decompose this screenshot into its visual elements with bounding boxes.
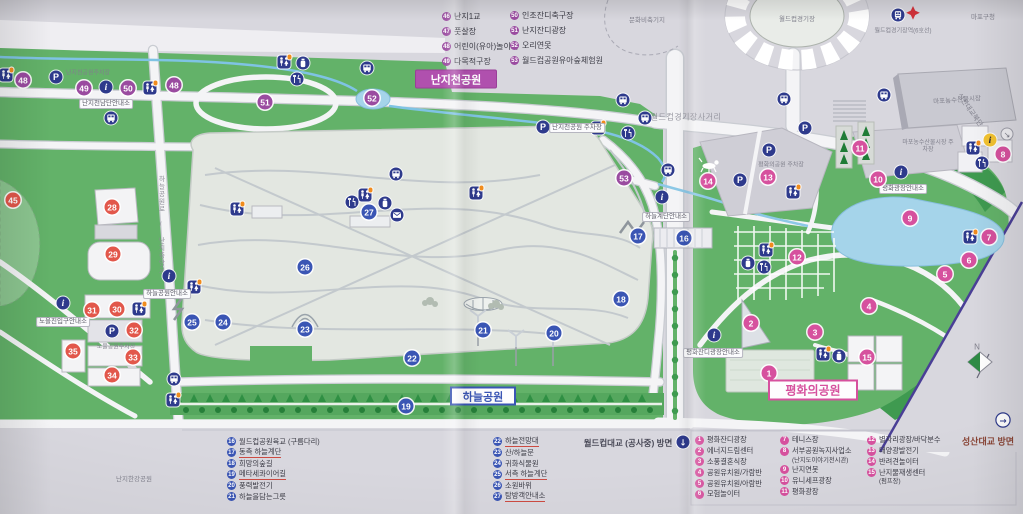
bus-icon [390,168,403,181]
map-marker-31: 31 [85,303,100,318]
legend-peace-col3: 12별자리광장/바닥분수13태양광발전기14반려견놀이터15난지물재생센터(펌프… [867,435,941,486]
restroom-icon [967,142,980,155]
svg-text:P: P [53,72,59,82]
worldcup-bridge-direction: 월드컵대교 (공사중) 방면 [584,437,673,449]
map-marker-52: 52 [365,91,380,106]
legend-item-49: 49다목적구장 [442,54,518,69]
bus-icon [639,112,652,125]
legend-label: 어린이(유아)놀이터 [454,41,518,52]
map-marker-14: 14 [701,174,716,189]
map-marker-45: 45 [6,193,21,208]
svg-text:P: P [766,145,772,155]
food-icon [291,73,304,86]
legend-sky-col2: 22하늘전망대23산/하늘문24귀화식물원25서측 하늘계단26소원바위27탐방… [493,436,547,502]
restroom-icon [760,244,773,257]
legend-number-badge: 24 [493,459,502,468]
svg-text:i: i [62,299,65,308]
map-marker-53: 53 [617,171,632,186]
legend-number-badge: 26 [493,481,502,490]
accessible-dot [825,346,832,353]
legend-number-badge: 5 [695,479,704,488]
legend-top-col2: 50인조잔디축구장51난지잔디광장52오리연못53월드컵공원유아숲체험원 [510,8,603,68]
map-label: 하늘계단안내소 [642,212,690,222]
legend-label: 산/하늘문 [505,448,534,458]
map-label: 난지천남단안내소 [79,99,133,109]
legend-label: 모험놀이터 [707,489,740,499]
legend-top-col1: 46난지1교47풋살장48어린이(유아)놀이터49다목적구장 [442,9,518,69]
legend-label: 별자리광장/바닥분수 [879,435,941,445]
legend-number-badge: 47 [442,27,451,36]
accessible-dot [141,301,148,308]
legend-number-badge: 1 [695,436,704,445]
legend-number-badge: 23 [493,448,502,457]
legend-label: 난지물재생센터 [879,468,925,478]
map-marker-35: 35 [66,344,81,359]
legend-item-51: 51난지잔디광장 [510,23,603,38]
parking-icon: P [50,71,63,84]
legend-sublabel: (난지도이야기전시관) [792,457,852,465]
map-marker-10: 10 [871,172,886,187]
legend-number-badge: 7 [780,436,789,445]
map-marker-3: 3 [808,325,823,340]
legend-label: 귀화식물원 [505,459,539,469]
info-icon: i [163,270,176,283]
legend-item-46: 46난지1교 [442,9,518,24]
legend-sublabel: (펌프장) [879,478,941,486]
legend-item-4: 4공원유치원/가람반 [695,467,762,478]
legend-item-1: 1평화잔디광장 [695,435,762,446]
accessible-dot [975,140,982,147]
accessible-dot [152,80,159,87]
legend-item-8: 8서부공원녹지사업소 [780,446,852,457]
legend-number-badge: 52 [510,41,519,50]
parking-icon: P [763,144,776,157]
map-marker-32: 32 [127,323,142,338]
map-label: 하늘공원로 / 난지중앙로 [155,176,165,275]
map-label: 문화비축기지 [629,14,665,24]
info-icon: i [656,191,669,204]
restroom-icon [278,56,291,69]
cup-icon [742,257,755,270]
food-icon [346,196,359,209]
legend-label: 반려견놀이터 [879,457,919,467]
map-label: 평화잔디광장안내소 [683,348,743,358]
map-label: N [974,343,980,352]
legend-label: 태양광발전기 [879,446,919,456]
legend-item-25: 25서측 하늘계단 [493,469,547,480]
accessible-dot [972,229,979,236]
svg-text:→: → [999,416,1006,425]
map-marker-29: 29 [106,247,121,262]
legend-item-2: 2에너지드림센터 [695,446,762,457]
legend-number-badge: 16 [227,437,236,446]
arrow-right-icon: → [997,414,1010,427]
svg-text:i: i [900,168,903,177]
map-label: 하늘공원안내소 [143,289,191,299]
legend-item-19: 19메타세콰이어길 [227,469,320,480]
legend-label: 월드컵공원유아숲체험원 [522,55,603,66]
svg-text:P: P [737,175,743,185]
legend-number-badge: 4 [695,468,704,477]
legend-item-13: 13태양광발전기 [867,446,941,457]
legend-number-badge: 46 [442,12,451,21]
worldcup-park-paper-map: 4849504851525345282931303235333416171819… [0,0,1023,514]
cup-icon [297,57,310,70]
legend-number-badge: 13 [867,447,876,456]
legend-number-badge: 2 [695,447,704,456]
legend-label: 하늘전망대 [505,436,539,447]
map-marker-20: 20 [547,326,562,341]
legend-label: 공원유치원/가람반 [707,468,762,478]
map-marker-51: 51 [258,95,273,110]
map-label: 난지천공원 주차장 [549,123,605,133]
legend-label: 난지잔디광장 [522,25,566,36]
legend-item-3: 3소풍결혼식장 [695,457,762,468]
svg-text:i: i [168,272,171,281]
svg-text:i: i [989,136,992,145]
legend-label: 메타세콰이어길 [239,469,286,480]
legend-label: 평화잔디광장 [707,435,747,445]
map-label: 평화의공원 주차장 [758,160,804,169]
pyeonghwa-park-badge: 평화의공원 [768,380,858,401]
map-label: 난지천공원주차장 [66,68,110,77]
legend-item-6: 6모험놀이터 [695,489,762,500]
svg-text:↓: ↓ [679,438,686,447]
legend-item-20: 20풍력발전기 [227,480,320,491]
legend-label: 인조잔디축구장 [522,10,574,21]
map-marker-18: 18 [614,292,629,307]
restroom-icon [817,348,830,361]
arrow-ne-icon: ↘ [1002,129,1013,140]
svg-text:P: P [540,122,546,132]
legend-item-21: 21하늘을담는그릇 [227,491,320,502]
map-marker-26: 26 [298,260,313,275]
legend-peace-col1: 1평화잔디광장2에너지드림센터3소풍결혼식장4공원유치원/가람반5공원유치원/아… [695,435,762,500]
accessible-dot [239,201,246,208]
restroom-icon [359,189,372,202]
legend-peace-col2: 7테니스장8서부공원녹지사업소(난지도이야기전시관)9난지연못10유니세프광장1… [780,435,852,497]
map-marker-48: 48 [16,73,31,88]
legend-number-badge: 48 [442,42,451,51]
nanjicheon-park-badge: 난지천공원 [415,70,497,89]
legend-number-badge: 3 [695,457,704,466]
legend-label: 풍력발전기 [239,481,273,491]
cup-icon [379,197,392,210]
legend-number-badge: 51 [510,26,519,35]
map-marker-33: 33 [126,350,141,365]
legend-item-52: 52오리연못 [510,38,603,53]
legend-item-18: 18희망의숲길 [227,458,320,469]
map-label: 월드컵경기장 [779,13,815,23]
svg-text:P: P [109,326,115,336]
legend-label: 월드컵공원육교 (구름다리) [239,437,320,447]
legend-item-27: 27탐방객안내소 [493,491,547,502]
map-marker-17: 17 [631,229,646,244]
legend-label: 다목적구장 [454,56,491,67]
legend-item-48: 48어린이(유아)놀이터 [442,39,518,54]
haneul-park-badge: 하늘공원 [450,387,516,406]
legend-item-11: 11평화광장 [780,486,852,497]
restroom-icon [167,394,180,407]
legend-item-15: 15난지물재생센터 [867,467,941,478]
info-icon: i [100,81,113,94]
restroom-icon [964,231,977,244]
legend-item-22: 22하늘전망대 [493,436,547,447]
legend-item-53: 53월드컵공원유아숲체험원 [510,53,603,68]
restroom-icon [0,69,13,82]
map-marker-7: 7 [982,230,997,245]
legend-number-badge: 10 [780,476,789,485]
legend-label: 동측 하늘계단 [239,447,281,458]
legend-number-badge: 53 [510,56,519,65]
parking-icon: P [106,325,119,338]
map-marker-34: 34 [105,368,120,383]
food-icon [976,157,989,170]
bus-icon [361,62,374,75]
legend-item-7: 7테니스장 [780,435,852,446]
map-marker-49: 49 [77,81,92,96]
legend-label: 난지연못 [792,465,818,475]
map-marker-6: 6 [962,253,977,268]
legend-number-badge: 12 [867,436,876,445]
bus-icon [662,164,675,177]
map-label: 마포구청 [971,11,995,21]
map-marker-27: 27 [362,205,377,220]
legend-label: 공원유치원/아람반 [707,479,762,489]
map-marker-1: 1 [762,366,777,381]
svg-text:i: i [713,331,716,340]
bus-icon [168,373,181,386]
map-marker-50: 50 [121,81,136,96]
legend-label: 에너지드림센터 [707,446,753,456]
legend-label: 탐방객안내소 [505,491,545,502]
map-marker-28: 28 [105,200,120,215]
map-marker-19: 19 [399,399,414,414]
legend-item-24: 24귀화식물원 [493,458,547,469]
svg-text:i: i [661,193,664,202]
map-marker-16: 16 [677,231,692,246]
legend-label: 난지1교 [454,11,481,22]
legend-item-50: 50인조잔디축구장 [510,8,603,23]
arrow-down-icon: ↓ [677,436,690,449]
bus-icon [105,112,118,125]
legend-item-10: 10유니세프광장 [780,475,852,486]
map-marker-24: 24 [216,315,231,330]
legend-number-badge: 27 [493,492,502,501]
legend-label: 풋살장 [454,26,476,37]
bus-icon [878,89,891,102]
cup-icon [833,350,846,363]
accessible-dot [175,392,182,399]
legend-number-badge: 9 [780,465,789,474]
legend-item-23: 23산/하늘문 [493,447,547,458]
legend-number-badge: 15 [867,468,876,477]
legend-number-badge: 20 [227,481,236,490]
map-label: 월드컵경기장역(6호선) [874,26,931,35]
map-marker-22: 22 [405,351,420,366]
legend-item-17: 17동측 하늘계단 [227,447,320,458]
legend-number-badge: 49 [442,57,451,66]
bus-icon [778,93,791,106]
info-icon: i [57,297,70,310]
info-yellow-icon: i [984,134,997,147]
legend-label: 하늘을담는그릇 [239,492,286,502]
map-marker-4: 4 [862,299,877,314]
legend-sky-col1: 16월드컵공원육교 (구름다리)17동측 하늘계단18희망의숲길19메타세콰이어… [227,436,320,502]
legend-number-badge: 22 [493,437,502,446]
accessible-dot [8,67,15,74]
restroom-icon [133,303,146,316]
legend-item-14: 14반려견놀이터 [867,457,941,468]
bus-icon [617,94,630,107]
accessible-dot [367,187,374,194]
legend-item-47: 47풋살장 [442,24,518,39]
legend-item-9: 9난지연못 [780,465,852,476]
legend-number-badge: 19 [227,470,236,479]
map-marker-12: 12 [790,250,805,265]
train-icon [892,9,905,22]
map-marker-13: 13 [761,170,776,185]
legend-number-badge: 8 [780,447,789,456]
accessible-dot [478,185,485,192]
map-marker-5: 5 [938,267,953,282]
svg-text:i: i [105,83,108,92]
legend-label: 서측 하늘계단 [505,469,547,480]
map-marker-9: 9 [903,211,918,226]
map-marker-11: 11 [853,141,868,156]
legend-number-badge: 50 [510,11,519,20]
restroom-icon [231,203,244,216]
legend-label: 오리연못 [522,40,551,51]
map-marker-30: 30 [110,302,125,317]
legend-label: 희망의숲길 [239,459,273,469]
restroom-icon [144,82,157,95]
map-marker-21: 21 [476,323,491,338]
info-icon: i [708,329,721,342]
info-icon: i [895,166,908,179]
restroom-icon [470,187,483,200]
legend-number-badge: 14 [867,457,876,466]
map-label: 마포농수산물시장 주차장 [902,140,954,154]
map-marker-2: 2 [744,316,759,331]
legend-label: 유니세프광장 [792,476,832,486]
mail-icon [391,209,404,222]
map-marker-23: 23 [298,322,313,337]
map-marker-25: 25 [185,315,200,330]
map-marker-8: 8 [996,147,1011,162]
legend-label: 평화광장 [792,487,818,497]
map-marker-15: 15 [860,350,875,365]
parking-icon: P [734,174,747,187]
legend-number-badge: 17 [227,448,236,457]
accessible-dot [795,184,802,191]
map-marker-48: 48 [167,78,182,93]
map-label: 평화광장안내소 [879,184,927,194]
map-label: 월드컵경기장사거리 [651,112,722,123]
food-icon [758,261,771,274]
food-icon [622,127,635,140]
legend-item-5: 5공원유치원/아람반 [695,478,762,489]
legend-number-badge: 21 [227,492,236,501]
legend-label: 소원바위 [505,481,532,491]
legend-label: 서부공원녹지사업소 [792,446,852,456]
seongsan-bridge-direction: 성산대교 방면 [962,435,1014,448]
legend-item-12: 12별자리광장/바닥분수 [867,435,941,446]
legend-number-badge: 25 [493,470,502,479]
legend-label: 소풍결혼식장 [707,457,747,467]
legend-number-badge: 6 [695,490,704,499]
accessible-dot [768,242,775,249]
svg-text:↘: ↘ [1004,130,1011,139]
legend-item-26: 26소원바위 [493,480,547,491]
legend-number-badge: 18 [227,459,236,468]
parking-icon: P [799,122,812,135]
legend-number-badge: 11 [780,487,789,496]
restroom-icon [787,186,800,199]
map-label: 난지한강공원 [116,473,152,483]
legend-label: 테니스장 [792,435,818,445]
svg-text:P: P [802,123,808,133]
accessible-dot [286,54,293,61]
accessible-dot [196,279,203,286]
parking-icon: P [537,121,550,134]
legend-item-16: 16월드컵공원육교 (구름다리) [227,436,320,447]
map-label: 노을진입구안내소 [36,317,90,327]
